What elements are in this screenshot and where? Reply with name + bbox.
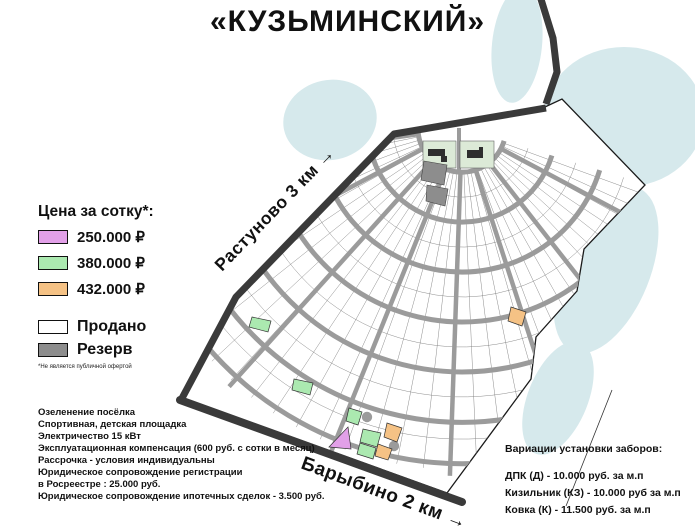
fence-line: Ковка (К) - 11.500 руб. за м.п: [505, 502, 690, 519]
legend-item-432: 432.000 ₽: [38, 280, 238, 298]
poster: «КУЗЬМИНСКИЙ»: [0, 0, 695, 526]
fence-options: Вариации установки заборов: ДПК (Д) - 10…: [505, 441, 690, 519]
price-swatch-380: [38, 256, 68, 270]
amenities-line: Эксплуатационная компенсация (600 руб. с…: [38, 443, 328, 455]
legend-item-reserve: Резерв: [38, 341, 238, 359]
amenities-line: в Росреестре : 25.000 руб.: [38, 479, 328, 491]
legend-heading: Цена за сотку*:: [38, 203, 238, 221]
sold-swatch: [38, 320, 68, 334]
legend-item-250: 250.000 ₽: [38, 228, 238, 246]
reserve-label: Резерв: [77, 341, 132, 359]
price-legend: Цена за сотку*: 250.000 ₽ 380.000 ₽ 432.…: [38, 203, 238, 370]
amenities-list: Озеленение посёлка Спортивная, детская п…: [38, 407, 328, 503]
price-swatch-432: [38, 282, 68, 296]
amenities-line: Юридическое сопровождение ипотечных сдел…: [38, 491, 328, 503]
price-label-432: 432.000 ₽: [77, 280, 145, 298]
legend-item-sold: Продано: [38, 318, 238, 336]
price-label-250: 250.000 ₽: [77, 228, 145, 246]
fence-line: Кизильник (КЗ) - 10.000 руб за м.п: [505, 485, 690, 502]
sold-label: Продано: [77, 318, 146, 336]
legend-item-380: 380.000 ₽: [38, 254, 238, 272]
fence-line: ДПК (Д) - 10.000 руб. за м.п: [505, 468, 690, 485]
price-swatch-250: [38, 230, 68, 244]
amenities-line: Озеленение посёлка: [38, 407, 328, 419]
access-road-north: [540, 0, 557, 104]
amenities-line: Юридическое сопровождение регистрации: [38, 467, 328, 479]
price-label-380: 380.000 ₽: [77, 254, 145, 272]
fence-heading: Вариации установки заборов:: [505, 441, 690, 458]
amenities-line: Спортивная, детская площадка: [38, 419, 328, 431]
reserve-swatch: [38, 343, 68, 357]
amenities-line: Рассрочка - условия индивидуальны: [38, 455, 328, 467]
legend-footnote: *Не является публичной офертой: [38, 364, 238, 370]
amenities-line: Электричество 15 кВт: [38, 431, 328, 443]
